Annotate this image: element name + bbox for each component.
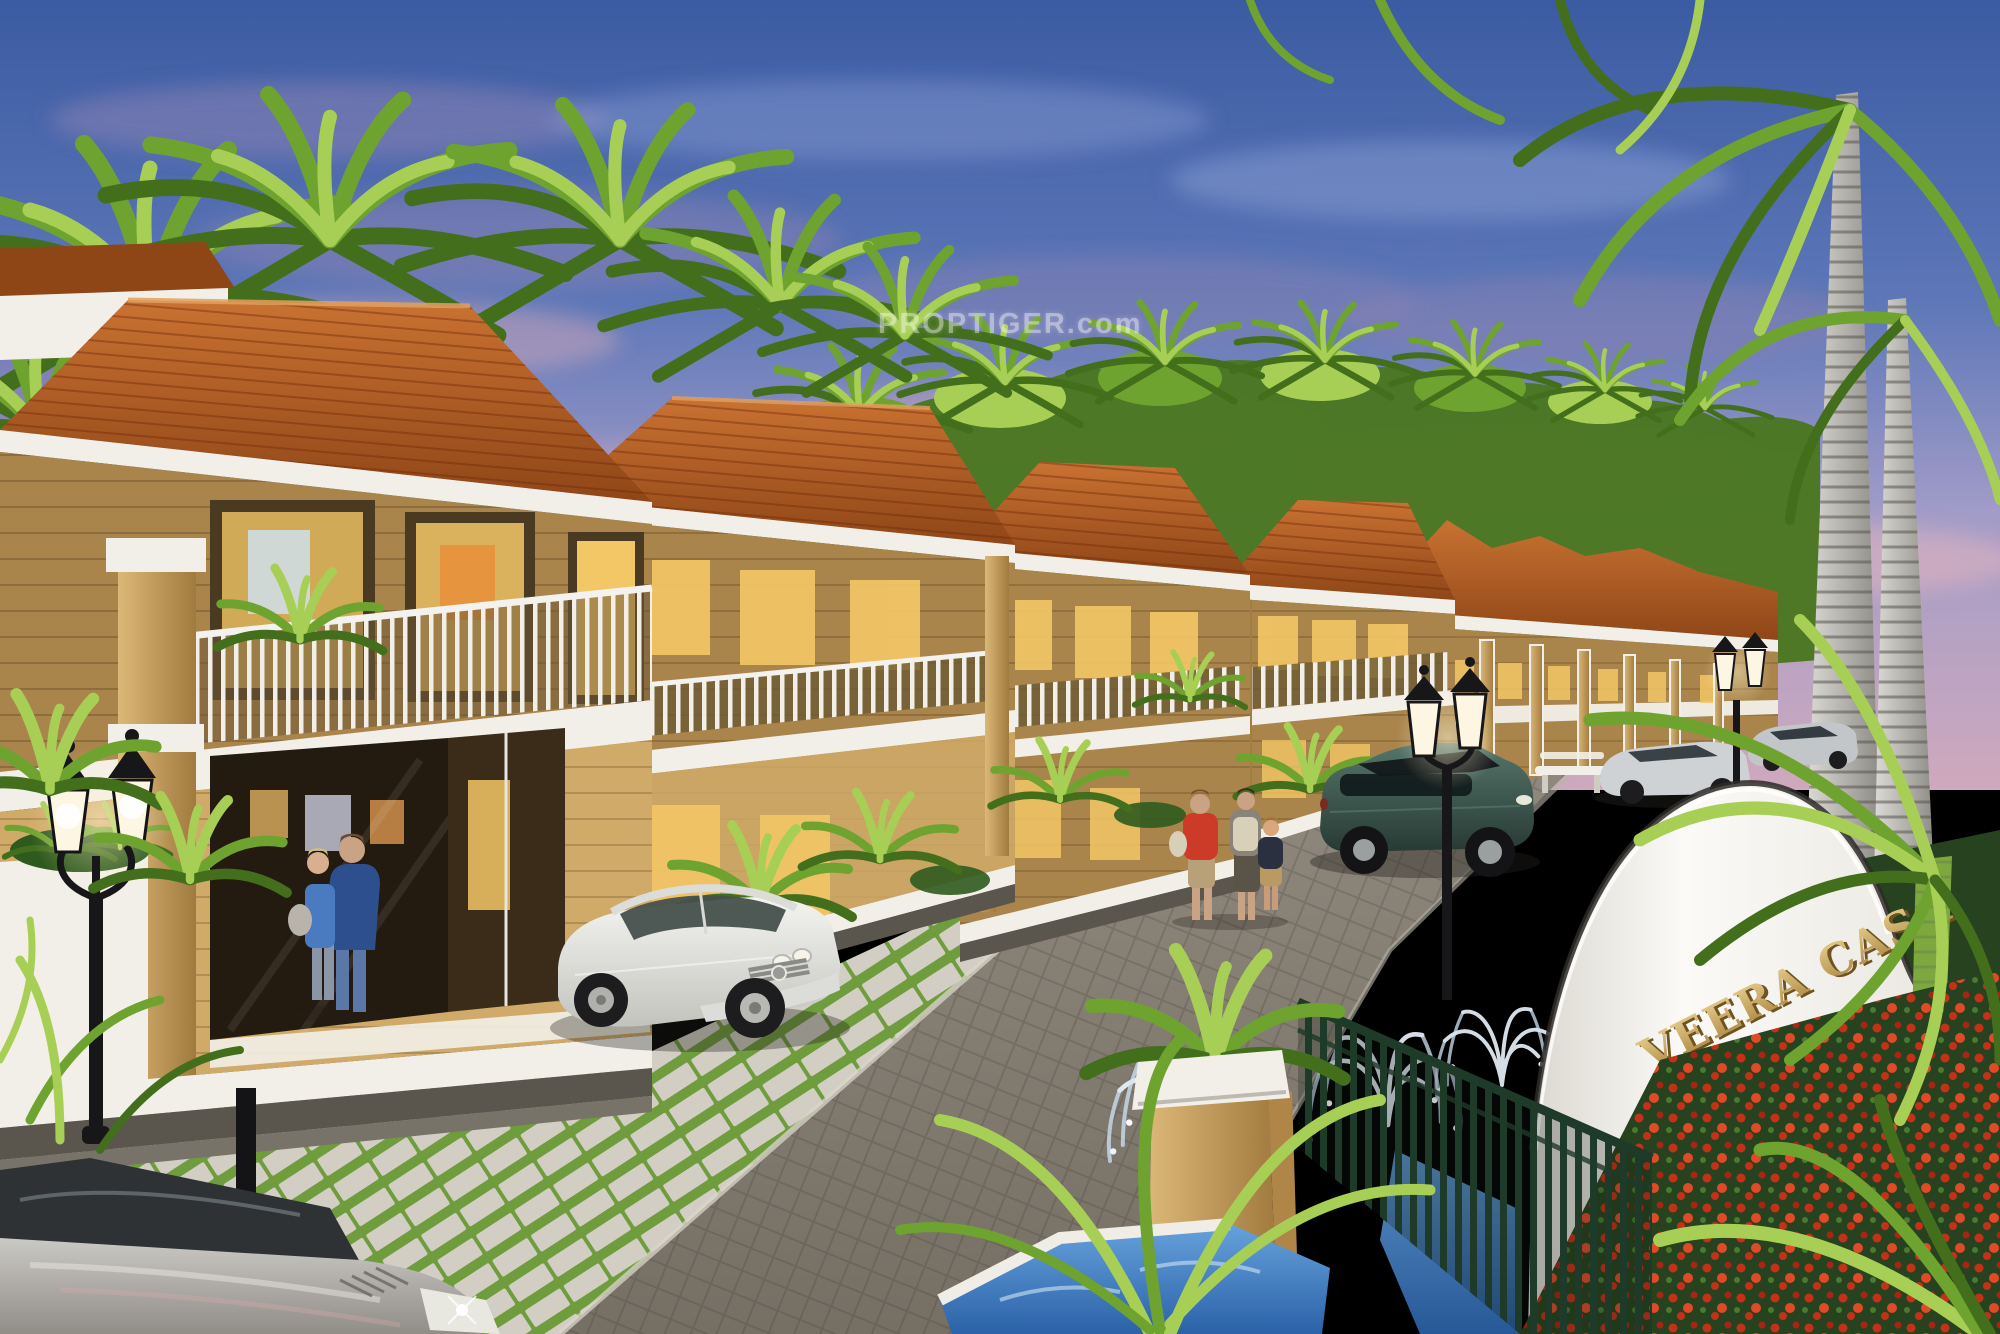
villa-1-side-wall bbox=[0, 852, 148, 1115]
render-canvas: VEERA CASA VEERA CASA bbox=[0, 0, 2000, 1334]
vw-badge bbox=[772, 966, 786, 980]
watermark: PROPTIGER.com bbox=[878, 308, 1178, 341]
shoulder-bag bbox=[288, 904, 312, 936]
architectural-render: VEERA CASA VEERA CASA PROP bbox=[0, 0, 2000, 1334]
suv-headlight bbox=[1516, 795, 1532, 805]
